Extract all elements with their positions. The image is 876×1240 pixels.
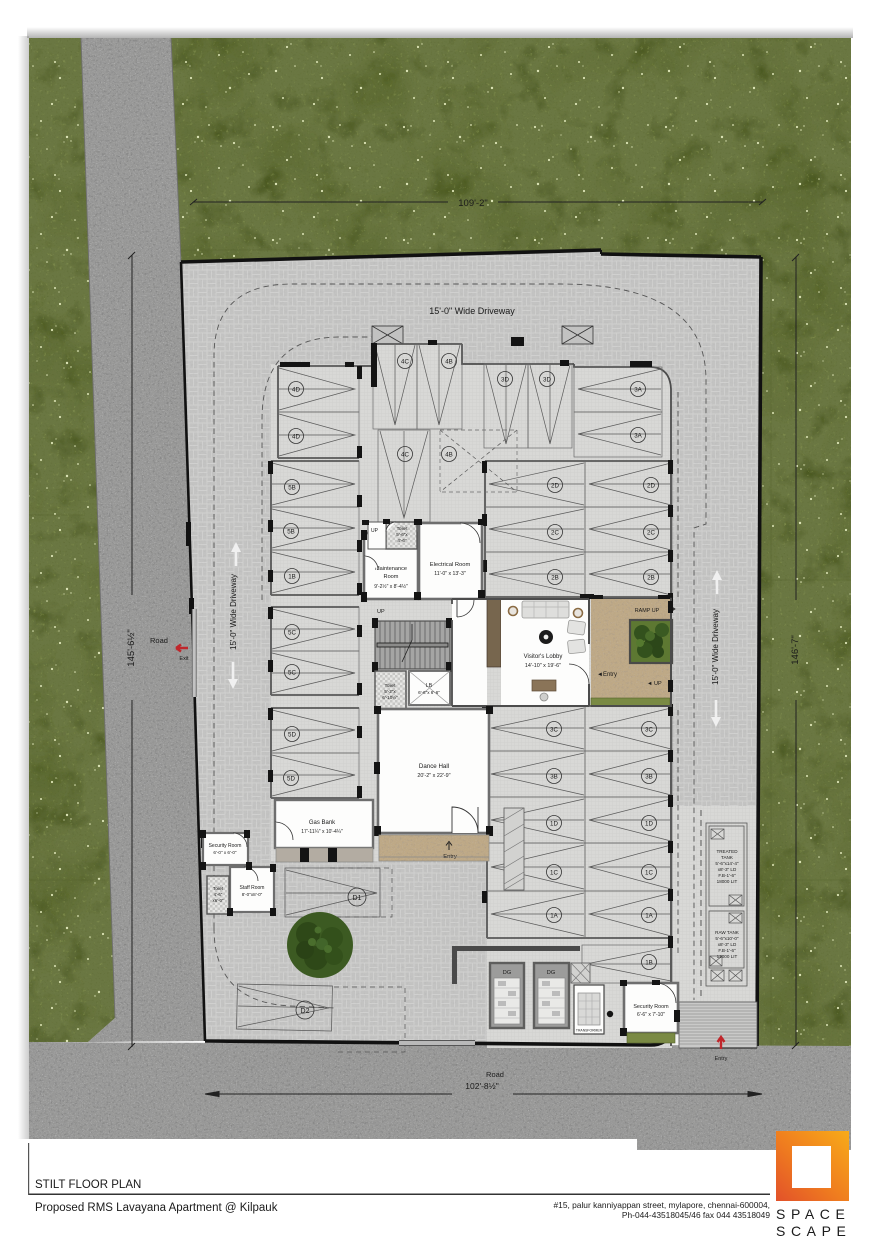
- svg-text:1A: 1A: [550, 913, 558, 920]
- svg-text:Security Room: Security Room: [209, 843, 242, 849]
- svg-text:8'-0"x8'-0": 8'-0"x8'-0": [242, 892, 263, 897]
- svg-text:1B: 1B: [645, 960, 653, 967]
- svg-text:Exit: Exit: [179, 656, 189, 662]
- svg-text:6'-6"x 6'-6": 6'-6"x 6'-6": [418, 690, 440, 695]
- svg-text:x8'-3" LD: x8'-3" LD: [718, 867, 737, 872]
- svg-text:TREATED: TREATED: [716, 849, 738, 854]
- svg-text:3C: 3C: [550, 727, 558, 734]
- svg-text:F.B-1'-6": F.B-1'-6": [718, 873, 736, 878]
- svg-text:4B: 4B: [445, 359, 453, 366]
- svg-text:5'-2"x: 5'-2"x: [384, 689, 396, 694]
- svg-text:Road: Road: [150, 636, 168, 645]
- svg-text:5B: 5B: [288, 485, 296, 492]
- svg-text:UP: UP: [371, 528, 379, 534]
- svg-text:RAW TANK: RAW TANK: [715, 930, 740, 935]
- svg-text:Toilet: Toilet: [397, 526, 408, 531]
- svg-text:Security Room: Security Room: [633, 1004, 669, 1010]
- svg-text:Electrical Room: Electrical Room: [430, 562, 471, 568]
- svg-text:◄Entry: ◄Entry: [597, 672, 617, 678]
- svg-text:LB: LB: [426, 683, 433, 689]
- svg-text:2D: 2D: [551, 483, 559, 490]
- svg-text:Visitor's Lobby: Visitor's Lobby: [524, 654, 563, 660]
- svg-text:3C: 3C: [645, 727, 653, 734]
- svg-text:145'-6½": 145'-6½": [126, 629, 137, 666]
- svg-text:Gas Bank: Gas Bank: [309, 820, 336, 826]
- svg-text:#15, palur kanniyappan street,: #15, palur kanniyappan street, mylapore,…: [554, 1200, 771, 1210]
- svg-text:18000 LIT: 18000 LIT: [717, 879, 738, 884]
- svg-text:17'-11¼" x 10'-4¼": 17'-11¼" x 10'-4¼": [301, 829, 343, 835]
- svg-text:6'-0" x 6'-0": 6'-0" x 6'-0": [213, 850, 237, 855]
- svg-text:6'-6" x 7'-10": 6'-6" x 7'-10": [637, 1012, 665, 1018]
- svg-text:Maintenance: Maintenance: [375, 566, 407, 572]
- svg-text:12000 LIT: 12000 LIT: [717, 954, 738, 959]
- svg-text:102'-8½": 102'-8½": [465, 1081, 498, 1091]
- svg-text:14'-10" x 19'-6": 14'-10" x 19'-6": [525, 663, 561, 669]
- svg-text:1C: 1C: [550, 870, 558, 877]
- svg-text:4'-6": 4'-6": [214, 892, 223, 897]
- svg-text:9'-2½" x 8'-4½": 9'-2½" x 8'-4½": [374, 583, 408, 590]
- svg-text:146'-7": 146'-7": [790, 635, 801, 664]
- svg-text:D2: D2: [301, 1008, 310, 1015]
- svg-text:3A: 3A: [634, 387, 642, 394]
- svg-text:5C: 5C: [288, 630, 296, 637]
- svg-text:◄ UP: ◄ UP: [647, 681, 662, 687]
- svg-text:F.B-1'-6": F.B-1'-6": [718, 948, 736, 953]
- svg-text:3B: 3B: [645, 774, 653, 781]
- svg-text:DG: DG: [503, 970, 511, 976]
- svg-text:4C: 4C: [401, 359, 409, 366]
- svg-text:15'-0" Wide Driveway: 15'-0" Wide Driveway: [229, 574, 238, 650]
- svg-text:11'-0" x 13'-3": 11'-0" x 13'-3": [434, 571, 466, 577]
- svg-text:109'-2": 109'-2": [458, 198, 487, 209]
- svg-text:SCAPE: SCAPE: [776, 1223, 851, 1239]
- svg-text:DG: DG: [547, 970, 555, 976]
- svg-text:Ph-044-43518045/46 fax 044 435: Ph-044-43518045/46 fax 044 43518049: [622, 1210, 770, 1220]
- svg-text:2C: 2C: [647, 530, 655, 537]
- svg-text:5'-6"x14'-4": 5'-6"x14'-4": [715, 861, 739, 866]
- svg-text:5D: 5D: [287, 776, 295, 783]
- svg-text:Road: Road: [486, 1070, 504, 1079]
- svg-text:Entry: Entry: [715, 1056, 728, 1062]
- svg-text:1D: 1D: [645, 821, 653, 828]
- svg-text:1C: 1C: [645, 870, 653, 877]
- svg-text:3B: 3B: [550, 774, 558, 781]
- svg-text:1B: 1B: [288, 574, 296, 581]
- svg-text:5B: 5B: [287, 529, 295, 536]
- svg-text:5'-6"x10'-0": 5'-6"x10'-0": [715, 936, 739, 941]
- svg-text:2B: 2B: [551, 575, 559, 582]
- svg-text:SPACE: SPACE: [776, 1206, 850, 1222]
- svg-text:5C: 5C: [288, 670, 296, 677]
- svg-text:STILT FLOOR PLAN: STILT FLOOR PLAN: [35, 1179, 141, 1191]
- svg-text:2C: 2C: [551, 530, 559, 537]
- svg-text:6'-10½": 6'-10½": [382, 694, 398, 700]
- svg-text:Dance Hall: Dance Hall: [419, 763, 449, 770]
- svg-text:2D: 2D: [647, 483, 655, 490]
- svg-text:Toilet: Toilet: [213, 886, 224, 891]
- svg-text:20'-2" x 22'-9": 20'-2" x 22'-9": [417, 773, 450, 779]
- svg-text:4D: 4D: [292, 387, 300, 394]
- svg-text:3A: 3A: [634, 433, 642, 440]
- svg-text:4D: 4D: [292, 434, 300, 441]
- svg-text:Room: Room: [384, 574, 399, 580]
- svg-text:3D: 3D: [501, 377, 509, 384]
- svg-text:4C: 4C: [401, 452, 409, 459]
- svg-text:TRANSFORMER: TRANSFORMER: [576, 1029, 603, 1033]
- svg-text:1D: 1D: [550, 821, 558, 828]
- svg-text:3D: 3D: [543, 377, 551, 384]
- svg-text:4B: 4B: [445, 452, 453, 459]
- svg-text:5D: 5D: [288, 732, 296, 739]
- svg-text:TANK: TANK: [721, 855, 734, 860]
- svg-text:15'-0" Wide Driveway: 15'-0" Wide Driveway: [429, 306, 515, 316]
- svg-text:RAMP UP: RAMP UP: [635, 608, 660, 614]
- svg-text:4'-6": 4'-6": [397, 538, 407, 543]
- svg-text:x6'-0": x6'-0": [213, 898, 224, 903]
- svg-text:UP: UP: [377, 609, 385, 615]
- svg-text:Toilet: Toilet: [385, 683, 396, 688]
- svg-text:5'-6"x: 5'-6"x: [396, 532, 408, 537]
- svg-text:2B: 2B: [647, 575, 655, 582]
- svg-text:1A: 1A: [645, 913, 653, 920]
- svg-text:D1: D1: [353, 895, 362, 902]
- svg-text:Staff Room: Staff Room: [240, 885, 265, 891]
- svg-text:Proposed RMS Lavayana Apartmen: Proposed RMS Lavayana Apartment @ Kilpau…: [35, 1202, 278, 1214]
- svg-text:15'-0" Wide Driveway: 15'-0" Wide Driveway: [711, 609, 720, 685]
- svg-text:x8'-3" LD: x8'-3" LD: [718, 942, 737, 947]
